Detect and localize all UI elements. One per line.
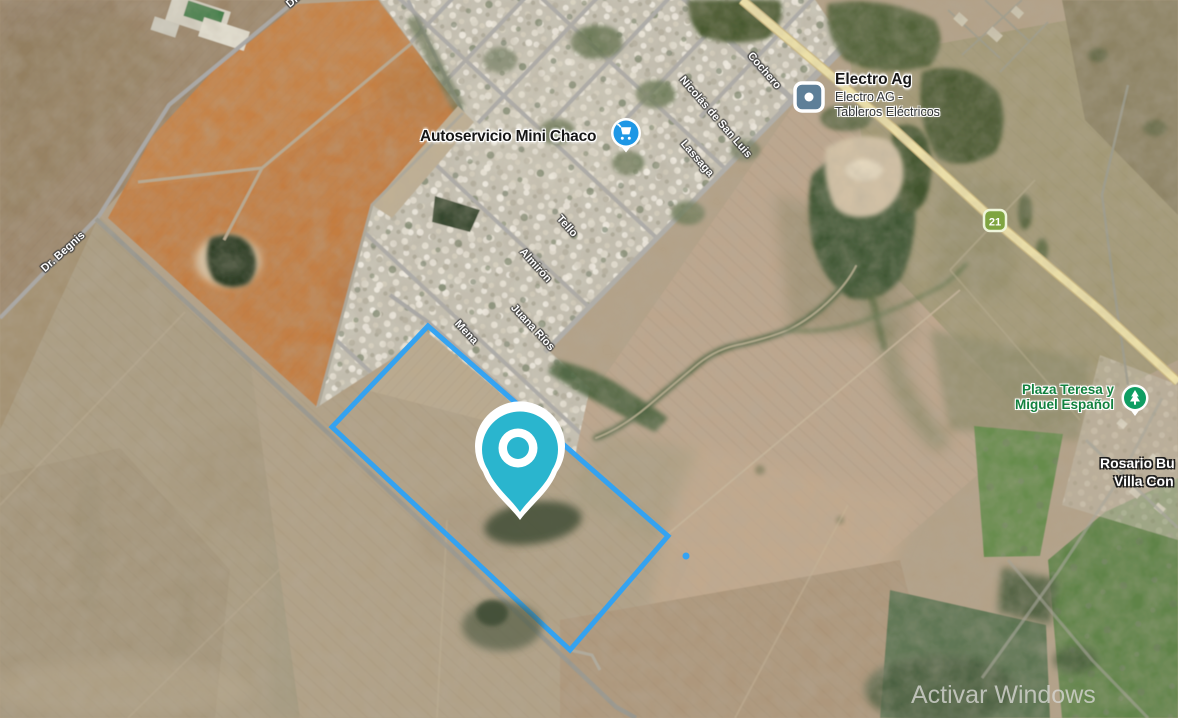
svg-text:21: 21 — [989, 217, 1001, 229]
